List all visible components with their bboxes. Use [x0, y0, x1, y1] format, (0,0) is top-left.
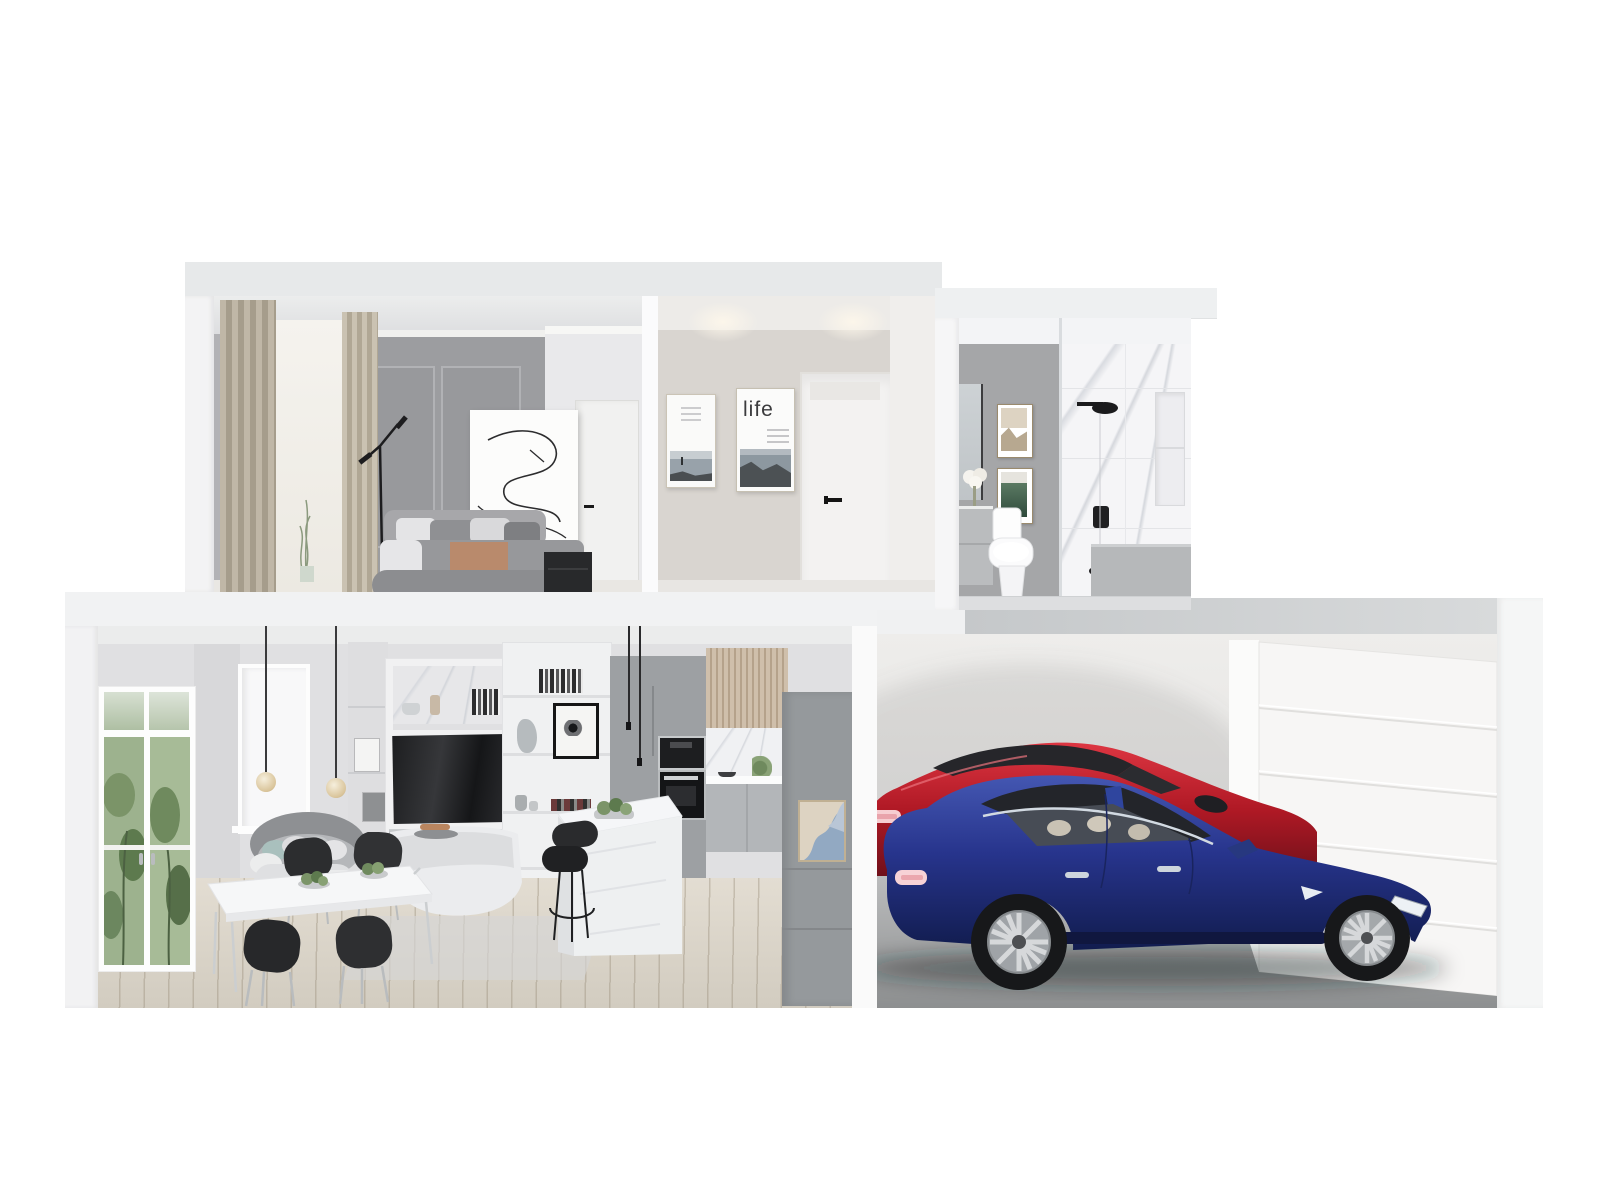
transom-glass — [149, 692, 189, 730]
bedroom — [214, 296, 642, 592]
shower-niche — [1155, 392, 1185, 506]
bathroom-floor — [959, 596, 1191, 610]
bathroom — [959, 318, 1191, 610]
garage-divider-wall — [860, 626, 877, 1008]
counter-plant — [752, 756, 772, 776]
garage — [877, 634, 1497, 1008]
counter-bowl — [718, 772, 736, 777]
bedroom-furniture — [214, 296, 642, 592]
upper-left-exterior-wall — [185, 296, 214, 592]
vanity-flowers — [961, 468, 993, 506]
shelf-decor — [402, 703, 420, 715]
bath-photo-top — [997, 404, 1033, 458]
door-handle — [1065, 872, 1089, 878]
toilet — [985, 504, 1045, 610]
bathroom-left-wall — [935, 318, 959, 610]
shelf-sculpture — [517, 719, 537, 753]
island-pendant-cord — [628, 626, 630, 722]
dining-set — [186, 832, 456, 1008]
entry-wall-sliver — [852, 626, 860, 1008]
microwave — [658, 736, 706, 770]
pendant-globe — [256, 772, 276, 792]
poster-figure — [681, 457, 683, 465]
kitchen-counter — [706, 776, 788, 784]
hallway-end-wall — [890, 296, 940, 592]
cutaway-house-render: life — [0, 0, 1600, 1200]
garden-door-glass — [99, 735, 195, 971]
life-poster: life — [736, 388, 795, 492]
island-pendant-tip — [626, 722, 631, 730]
rear-wheel — [971, 894, 1067, 990]
island-pendant-tip — [637, 758, 642, 766]
hallway: life — [658, 296, 940, 592]
shelf-books — [472, 689, 500, 715]
garage-ceiling-patch — [877, 610, 965, 634]
pendant-globe — [326, 778, 346, 798]
kitchen-base-cabinets — [706, 784, 788, 852]
kitchen-slat-cabinet — [706, 648, 788, 728]
pendant-cord — [265, 626, 267, 772]
pantry-art — [798, 800, 846, 862]
dining-chair — [241, 917, 302, 1006]
pantry-cabinet — [782, 692, 852, 1006]
pendant-cord — [335, 626, 337, 778]
garage-interior — [877, 634, 1497, 1008]
lower-left-exterior-wall — [65, 626, 98, 1008]
shelf-decor — [430, 695, 440, 715]
bed — [372, 510, 592, 592]
bar-stools — [538, 812, 608, 972]
right-exterior-wall — [1497, 598, 1543, 1008]
shelf-vases — [515, 795, 527, 811]
french-doors — [98, 686, 196, 972]
downlight-glow — [688, 302, 758, 342]
leaning-art — [354, 738, 380, 772]
door-handle — [826, 498, 842, 502]
transom-glass — [104, 692, 144, 730]
bathroom-roof-slab — [935, 288, 1217, 319]
dining-chair — [334, 914, 393, 1004]
shelf-vases — [529, 801, 538, 811]
hallway-floor — [658, 580, 940, 592]
kitchen-backsplash — [706, 728, 788, 778]
living-ceiling — [98, 626, 860, 644]
front-wheel — [1324, 895, 1410, 981]
seascape-poster — [666, 394, 716, 488]
shelf-books — [539, 669, 583, 693]
island-pendant-cord — [639, 626, 641, 758]
eye-poster — [553, 703, 599, 759]
downlight-glow — [818, 302, 888, 342]
living-dining-kitchen — [98, 626, 860, 1008]
media-tv — [392, 734, 508, 824]
mid-floor-slab — [65, 592, 965, 627]
life-poster-text: life — [743, 399, 774, 420]
roof-slab — [185, 262, 942, 297]
bedroom-hall-divider-wall — [642, 296, 658, 592]
hallway-door — [800, 372, 894, 592]
door-handle — [824, 496, 828, 504]
door-handle — [1157, 866, 1181, 872]
